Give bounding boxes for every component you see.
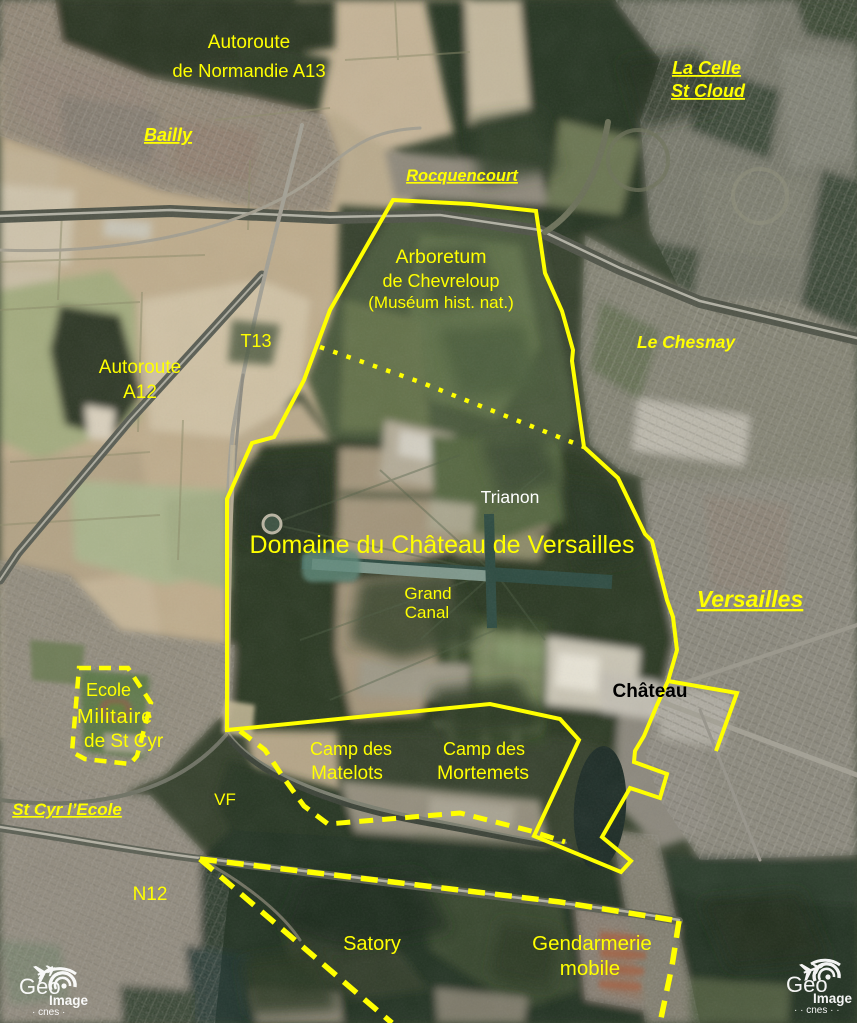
- svg-text:mobile: mobile: [560, 957, 620, 980]
- svg-text:Domaine du Château de Versaill: Domaine du Château de Versailles: [250, 531, 635, 559]
- svg-text:T13: T13: [240, 331, 271, 351]
- svg-text:Ecole: Ecole: [86, 680, 131, 700]
- svg-text:de Normandie A13: de Normandie A13: [172, 60, 325, 81]
- svg-text:Gendarmerie: Gendarmerie: [532, 932, 652, 955]
- svg-text:Rocquencourt: Rocquencourt: [406, 167, 519, 185]
- svg-text:Canal: Canal: [405, 603, 449, 622]
- svg-text:· cnes ·: · cnes ·: [32, 1007, 65, 1018]
- svg-text:Mortemets: Mortemets: [437, 762, 529, 784]
- svg-text:Versailles: Versailles: [697, 586, 804, 612]
- svg-text:St Cloud: St Cloud: [671, 81, 746, 101]
- svg-text:Grand: Grand: [404, 584, 451, 603]
- svg-text:A12: A12: [123, 382, 157, 403]
- svg-text:· · cnes · ·: · · cnes · ·: [794, 1005, 840, 1016]
- svg-text:Camp des: Camp des: [310, 739, 392, 759]
- svg-text:Militaire: Militaire: [77, 706, 153, 728]
- svg-text:N12: N12: [133, 884, 168, 905]
- svg-text:Château: Château: [613, 681, 688, 702]
- svg-text:St Cyr l’Ecole: St Cyr l’Ecole: [12, 800, 122, 819]
- svg-text:Satory: Satory: [343, 933, 401, 955]
- svg-text:de St Cyr: de St Cyr: [84, 731, 164, 752]
- svg-text:Autoroute: Autoroute: [99, 357, 181, 378]
- svg-text:Trianon: Trianon: [481, 487, 540, 507]
- svg-text:Arboretum: Arboretum: [395, 246, 486, 268]
- svg-text:Image: Image: [49, 993, 89, 1008]
- svg-text:Camp des: Camp des: [443, 739, 525, 759]
- svg-text:de Chevreloup: de Chevreloup: [382, 271, 499, 291]
- svg-text:VF: VF: [214, 790, 236, 809]
- svg-text:Bailly: Bailly: [144, 125, 193, 145]
- svg-text:(Muséum hist. nat.): (Muséum hist. nat.): [368, 293, 514, 312]
- svg-text:Autoroute: Autoroute: [208, 32, 290, 53]
- svg-text:Le Chesnay: Le Chesnay: [637, 332, 736, 352]
- svg-text:La Celle: La Celle: [672, 58, 741, 78]
- svg-text:Matelots: Matelots: [311, 763, 383, 784]
- svg-text:Image: Image: [813, 991, 853, 1006]
